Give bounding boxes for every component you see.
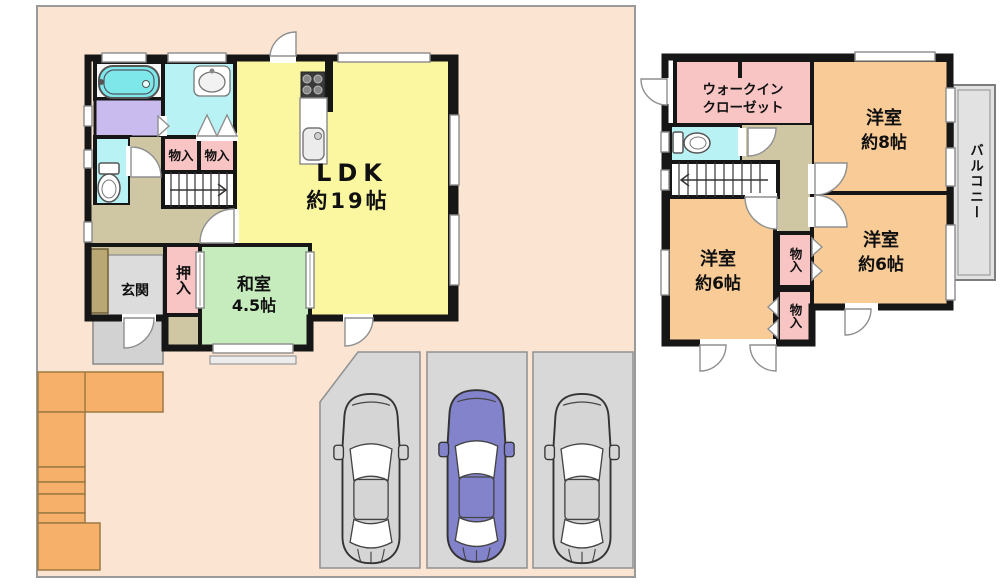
window — [855, 52, 935, 61]
yoshitsu6-right-label: 洋室 — [863, 229, 899, 251]
sink-icon — [303, 128, 324, 160]
first-floor: LDK 約19帖 和室 4.5帖 玄関 押入 物入 物入 — [84, 32, 459, 364]
yoshitsu8-label: 洋室 — [866, 107, 902, 129]
window — [661, 250, 669, 295]
wic-label-line2: クローゼット — [703, 99, 784, 116]
yoshitsu6-right-size-label: 約6帖 — [858, 254, 904, 275]
window — [661, 132, 669, 152]
car-icon — [334, 394, 408, 563]
faucet-icon — [315, 133, 322, 140]
balcony-label: バルコニー — [967, 143, 984, 221]
yoshitsu8-size-label: 約8帖 — [861, 132, 907, 153]
window — [84, 222, 92, 242]
shoe-cabinet — [91, 249, 108, 313]
window — [213, 344, 293, 353]
hallway-2f — [778, 125, 812, 233]
window — [450, 215, 459, 285]
second-floor: ウォークイン クローゼット 洋室 約8帖 洋室 約6帖 洋室 約6帖 物入 物入… — [641, 52, 995, 371]
car-icon — [439, 390, 514, 562]
window — [168, 53, 226, 62]
yoshitsu6-left-label: 洋室 — [700, 248, 736, 270]
washbasin-icon — [194, 66, 230, 96]
window — [946, 88, 955, 122]
room-laundry — [95, 99, 163, 137]
toilet-icon — [673, 132, 710, 153]
yoshitsu6-right-outer-door — [845, 309, 871, 335]
wic-door — [641, 79, 667, 105]
step-area — [165, 315, 200, 348]
yoshitsu6-left-outer-door — [700, 345, 726, 371]
floor-plan-svg: LDK 約19帖 和室 4.5帖 玄関 押入 物入 物入 — [0, 0, 1000, 586]
window — [84, 106, 92, 126]
window — [338, 53, 430, 62]
toilet-icon — [98, 163, 120, 202]
window — [102, 53, 146, 62]
monoire-upper-label: 物入 — [788, 247, 803, 274]
wic-label-line1: ウォークイン — [703, 82, 784, 98]
ldk-label: LDK — [316, 159, 388, 187]
monoire-label: 物入 — [204, 148, 230, 163]
yoshitsu6-left-outer-door — [750, 345, 776, 371]
window — [946, 148, 955, 186]
bathtub-icon — [98, 66, 159, 98]
window-sill — [210, 356, 296, 364]
washitsu-label: 和室 — [237, 274, 271, 295]
monoire-label: 物入 — [168, 148, 194, 163]
window — [661, 170, 669, 190]
monoire-lower-label: 物入 — [788, 303, 803, 330]
window — [946, 225, 955, 300]
window — [450, 115, 459, 185]
window — [84, 150, 92, 168]
ldk-size-label: 約19帖 — [306, 189, 389, 213]
floor-plan-image: LDK 約19帖 和室 4.5帖 玄関 押入 物入 物入 — [0, 0, 1000, 586]
oshiire-label: 押入 — [174, 264, 192, 295]
yoshitsu6-left-size-label: 約6帖 — [695, 273, 741, 294]
genkan-label: 玄関 — [121, 282, 149, 299]
washitsu-size-label: 4.5帖 — [232, 296, 276, 315]
car-icon — [545, 394, 619, 563]
